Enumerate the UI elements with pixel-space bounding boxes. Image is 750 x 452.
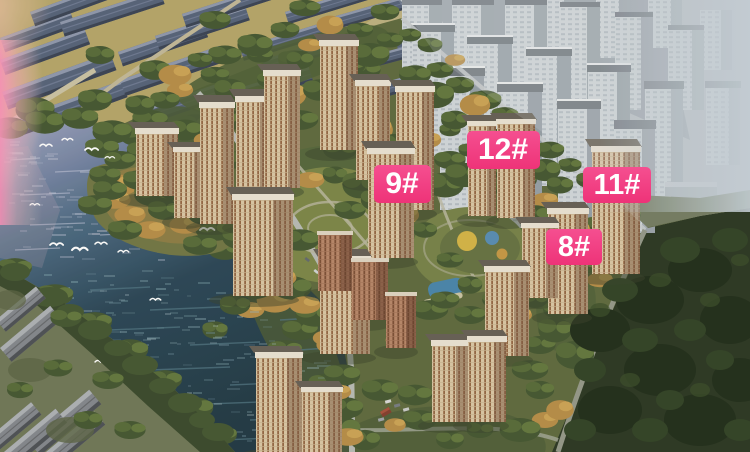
svg-text:8#: 8#	[558, 231, 590, 263]
svg-text:11#: 11#	[594, 169, 641, 201]
svg-text:12#: 12#	[478, 133, 528, 166]
svg-text:9#: 9#	[385, 167, 419, 200]
